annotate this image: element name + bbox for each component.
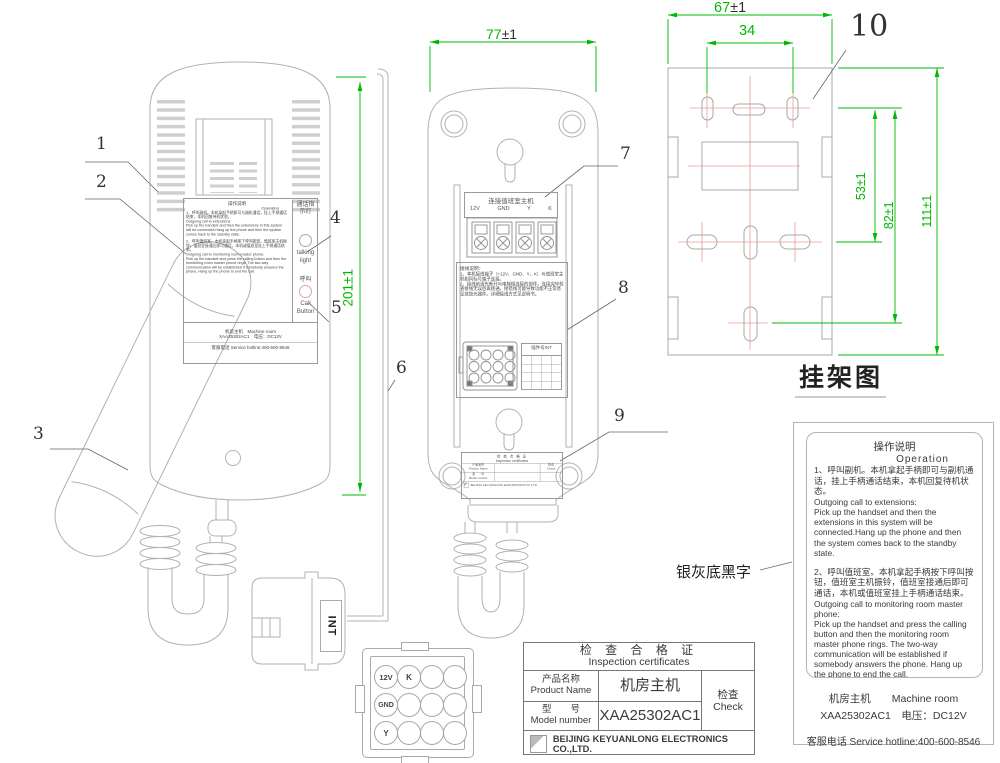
dim-bracket-inner: 34 xyxy=(739,24,755,39)
int-label-box: INT xyxy=(320,600,342,652)
callout-4: 4 xyxy=(330,210,341,227)
front-indicator-column: 通话指示灯 talking light 呼叫 Call Button xyxy=(292,200,318,322)
cert-title-en: Inspection certificates xyxy=(524,657,754,668)
operation-label-product-info: 机房主机 Machine room XAA25302AC1 电压：DC12V 客… xyxy=(794,691,993,748)
terminal-pin-k: K xyxy=(548,206,552,212)
callout-10: 10 xyxy=(850,12,888,42)
dim-front-height: 201±1 xyxy=(341,256,355,320)
cert-check-cell: 检查Check xyxy=(702,686,754,716)
call-button-label-en: Call Button xyxy=(294,301,318,316)
rear-certificate-label: 检 查 合 格 证 Inspection certificates 产品名称Pr… xyxy=(461,452,563,499)
connector-tab-bottom xyxy=(401,756,429,763)
dim-53: 53±1 xyxy=(855,156,868,216)
company-logo xyxy=(530,735,547,753)
connector-tab-right xyxy=(472,685,482,713)
terminal-block xyxy=(467,218,557,257)
connector-tab-top xyxy=(401,642,429,651)
cert-product-value: 机房主机 xyxy=(599,671,702,701)
call-button-label-zh: 呼叫 xyxy=(299,274,311,283)
front-product-strip: 机房主机 Machine room XAA25302AC1 电压：DC12V 客… xyxy=(183,322,318,364)
pin-k: K xyxy=(397,665,421,689)
call-button[interactable] xyxy=(299,285,312,298)
dim-111: 111±1 xyxy=(921,176,934,246)
front-coiled-cord xyxy=(140,526,236,646)
int-cable xyxy=(347,69,388,621)
terminal-pin-y: Y xyxy=(527,206,531,212)
talking-light-label-zh: 通话指示灯 xyxy=(295,202,317,216)
engineering-drawing-page: 1 2 3 4 5 6 7 8 9 10 201±1 77±1 67±1 34 … xyxy=(0,0,1000,763)
microphone-hole xyxy=(226,451,241,466)
connector-pin-diagram: 12V K GND Y xyxy=(362,648,474,758)
terminal-title: 连接值班室主机 xyxy=(465,195,557,205)
pin-gnd: GND xyxy=(374,693,398,717)
terminal-pin-12v: 12V xyxy=(470,206,480,212)
int-label: INT xyxy=(325,616,337,637)
talking-light-label-en: talking light xyxy=(294,250,318,265)
cert-company: BEIJING KEYUANLONG ELECTRONICS CO.,LTD. xyxy=(553,734,754,754)
inspection-certificate: 检 查 合 格 证 Inspection certificates 产品名称Pr… xyxy=(523,642,755,755)
company-logo xyxy=(464,483,469,488)
talking-light-indicator xyxy=(299,234,312,247)
cert-model-value: XAA25302AC1 xyxy=(599,702,702,730)
handset-cradle xyxy=(196,119,272,195)
label-color-note: 银灰底黑字 xyxy=(676,561,751,582)
terminal-label: 连接值班室主机 12V GND Y K xyxy=(464,192,558,218)
operation-label-inner: 操作说明 Operation 1、呼叫副机。本机拿起手柄即可与副机通话，挂上手柄… xyxy=(806,432,983,678)
callout-7: 7 xyxy=(620,146,631,163)
keyhole-slot-bottom xyxy=(496,409,522,435)
connector-number-table: 插件号INT xyxy=(521,343,562,390)
ops-title-zh: 操作说明 xyxy=(814,439,975,454)
pin-y: Y xyxy=(374,721,398,745)
cord-bushing xyxy=(208,520,236,536)
callout-2: 2 xyxy=(96,174,107,191)
callout-1: 1 xyxy=(96,136,107,153)
dim-rear-width: 77±1 xyxy=(486,27,517,41)
pin-assignment-grid xyxy=(522,355,561,390)
bracket-caption: 挂架图 xyxy=(799,358,883,394)
callout-3: 3 xyxy=(33,426,44,443)
rear-coiled-cord xyxy=(454,522,528,638)
ops-title-en: Operation xyxy=(814,454,975,465)
operation-label: 操作说明 Operation 1、呼叫副机。本机拿起手柄即可与副机通话，挂上手柄… xyxy=(793,422,994,745)
front-operation-text: 操作说明 Operation 1、呼叫副机。本机拿起手柄即可与副机通话，挂上手柄… xyxy=(186,201,288,319)
keyhole-slot-top xyxy=(497,139,523,165)
dim-82: 82±1 xyxy=(883,185,896,245)
callout-9: 9 xyxy=(614,408,625,425)
bracket-centerlines xyxy=(678,76,822,350)
pin-12v: 12V xyxy=(374,665,398,689)
connector-number: 插件号INT xyxy=(522,344,561,351)
callout-8: 8 xyxy=(618,280,629,297)
connector-tab-left xyxy=(355,685,365,713)
callout-6: 6 xyxy=(396,360,407,377)
terminal-pin-gnd: GND xyxy=(497,206,509,212)
dim-bracket-width: 67±1 xyxy=(714,1,746,16)
